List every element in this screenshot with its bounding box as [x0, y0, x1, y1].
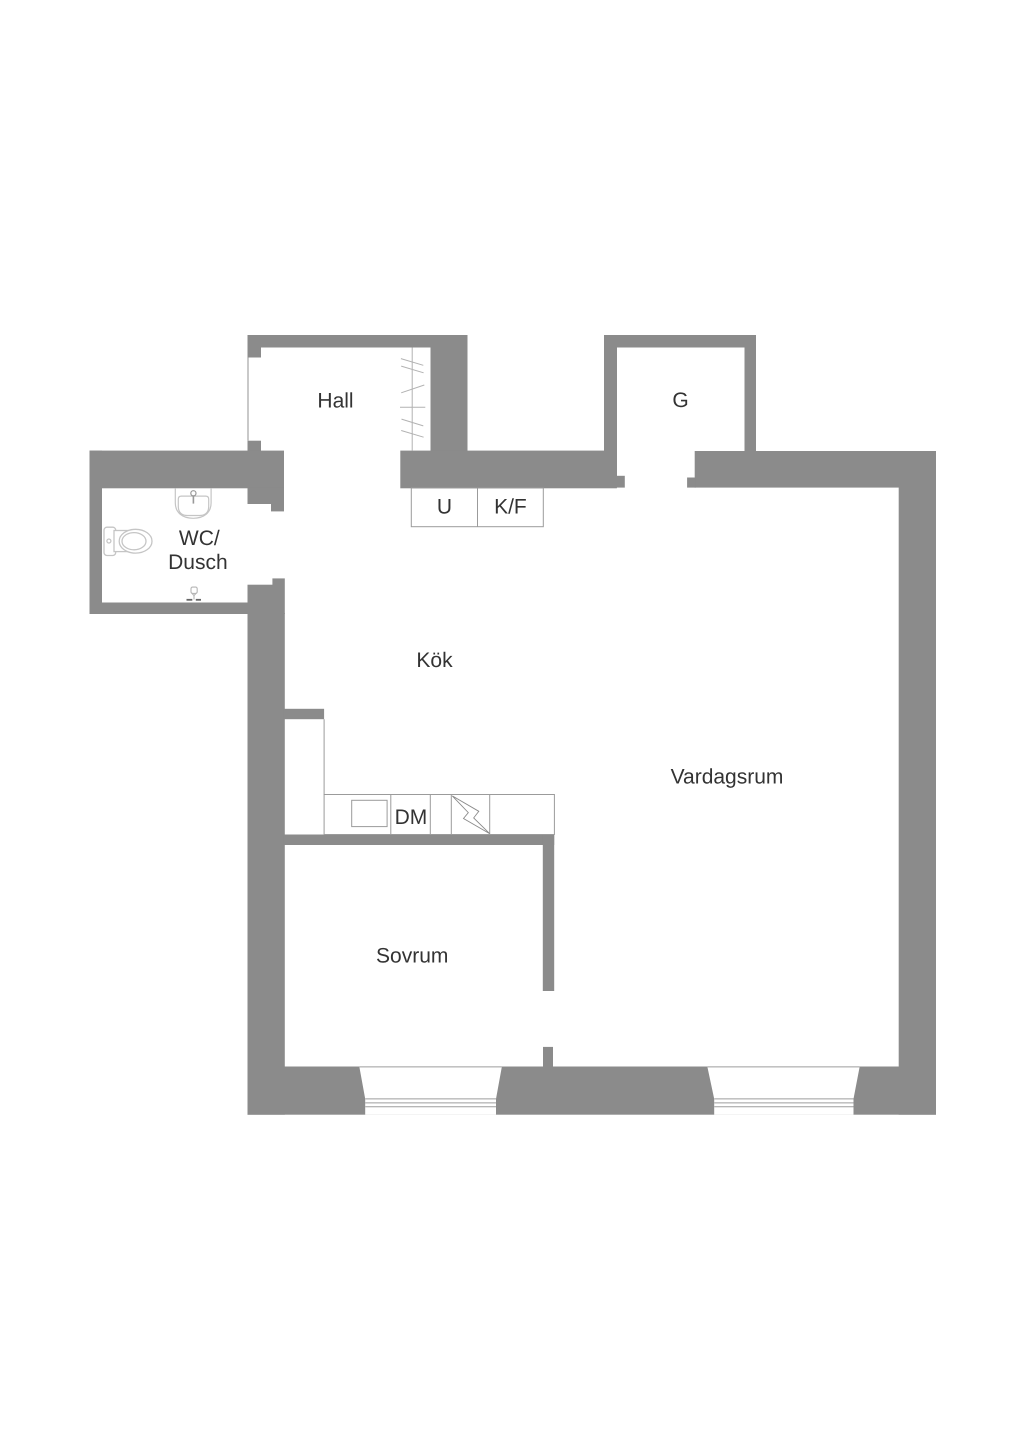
svg-text:DM: DM: [395, 806, 428, 829]
svg-text:Kök: Kök: [416, 649, 453, 672]
svg-text:Dusch: Dusch: [168, 551, 228, 574]
svg-text:K/F: K/F: [494, 496, 527, 519]
svg-text:Vardagsrum: Vardagsrum: [671, 765, 784, 788]
svg-text:G: G: [672, 389, 688, 412]
svg-text:U: U: [437, 496, 452, 519]
svg-text:WC/: WC/: [179, 527, 220, 550]
svg-text:Hall: Hall: [317, 389, 353, 412]
svg-text:Sovrum: Sovrum: [376, 945, 448, 968]
